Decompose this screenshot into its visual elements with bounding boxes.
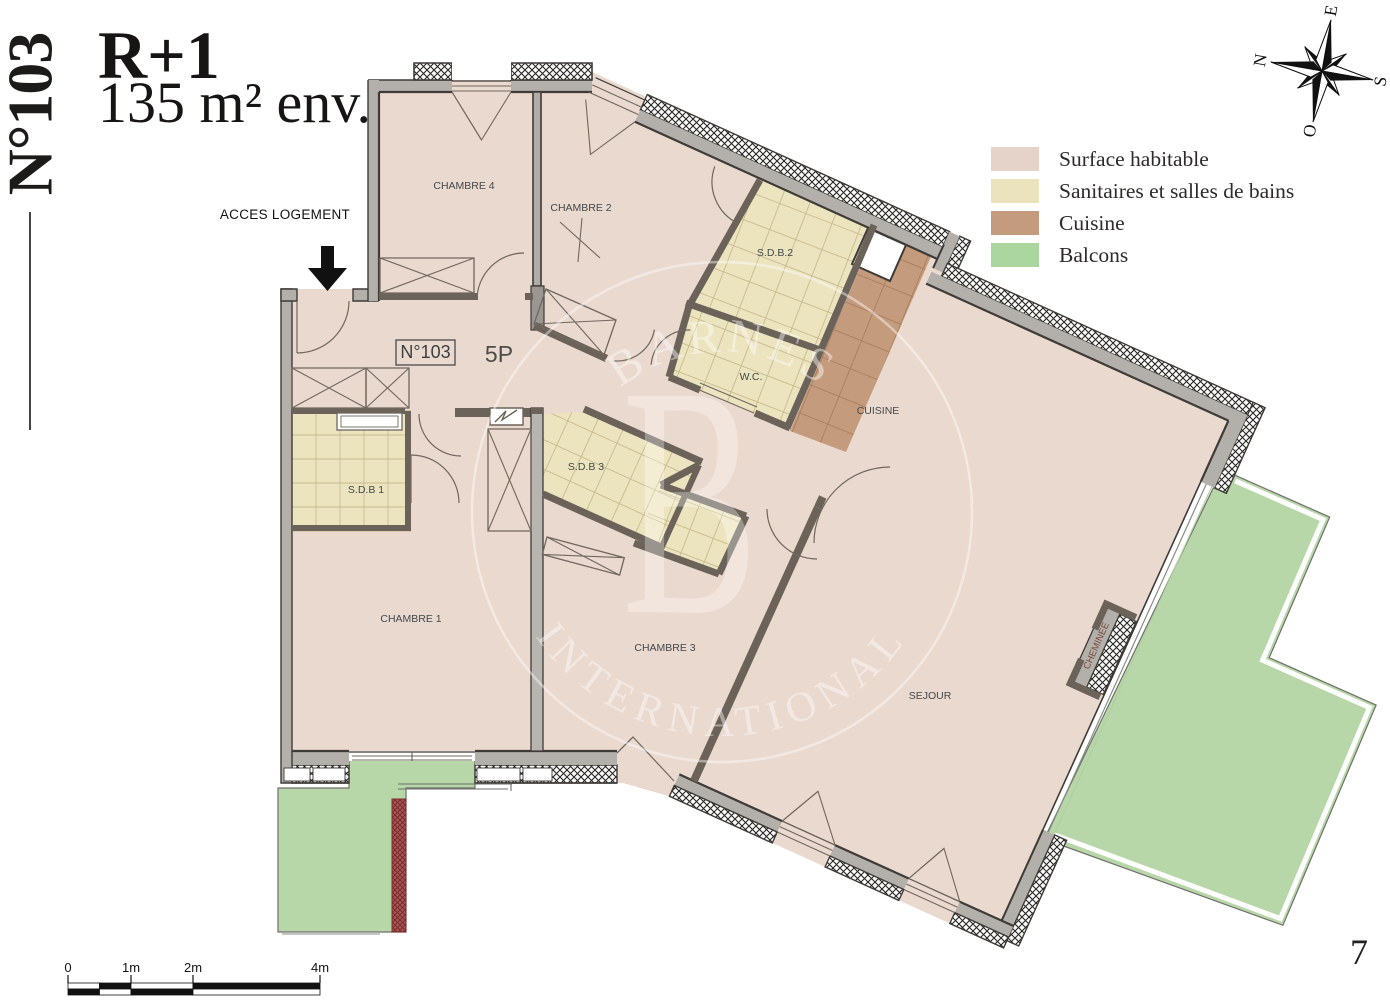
svg-text:ACCES LOGEMENT: ACCES LOGEMENT [220,207,350,222]
svg-text:S.D.B 1: S.D.B 1 [348,484,384,496]
svg-text:B: B [622,319,758,684]
svg-text:4m: 4m [311,960,329,975]
svg-text:S.D.B 3: S.D.B 3 [568,461,604,473]
svg-text:5P: 5P [485,341,513,367]
svg-text:CHAMBRE 4: CHAMBRE 4 [433,180,494,192]
svg-text:1m: 1m [122,960,140,975]
svg-text:N°103: N°103 [400,342,450,362]
svg-text:Balcons: Balcons [1059,243,1128,267]
svg-text:Cuisine: Cuisine [1059,211,1125,235]
svg-text:S.D.B.2: S.D.B.2 [757,247,793,259]
svg-text:CUISINE: CUISINE [857,405,900,417]
svg-text:0: 0 [64,960,71,975]
svg-text:SEJOUR: SEJOUR [909,690,952,702]
svg-text:Sanitaires et salles de bains: Sanitaires et salles de bains [1059,179,1294,203]
svg-text:Surface habitable: Surface habitable [1059,147,1209,171]
svg-text:CHAMBRE 1: CHAMBRE 1 [380,613,441,625]
svg-text:N°103: N°103 [0,33,66,196]
svg-text:2m: 2m [184,960,202,975]
svg-text:7: 7 [1350,932,1368,972]
svg-text:CHAMBRE 2: CHAMBRE 2 [550,202,611,214]
svg-text:135 m² env.: 135 m² env. [98,70,371,135]
